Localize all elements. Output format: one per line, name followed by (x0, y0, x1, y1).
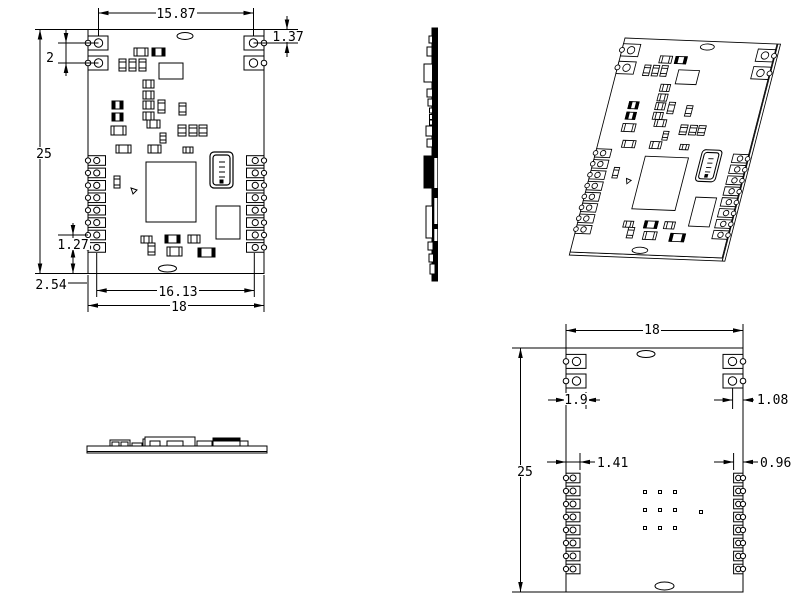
dim-label-board-height: 25 (36, 147, 52, 162)
castellation-pad (734, 525, 746, 535)
dim-label-pad-pitch: 1.27 (57, 238, 88, 253)
mounting-tab (618, 44, 641, 57)
castellation-pad (734, 551, 746, 561)
castellation-pad (573, 225, 593, 234)
dim-label-pad-width-right: 0.96 (760, 456, 791, 471)
castellation-pad (578, 203, 598, 212)
castellation-pad (592, 149, 612, 158)
dim-label-tab-width: 1.9 (564, 393, 587, 408)
dim-label-hole-span: 15.87 (156, 7, 195, 22)
bottom-view (563, 348, 746, 592)
dim-label-bottom-board-width: 18 (644, 323, 660, 338)
mounting-tab (723, 374, 746, 388)
mounting-tab (613, 61, 636, 74)
castellation-pad (734, 473, 746, 483)
castellation-pad (85, 193, 105, 203)
castellation-pad (247, 193, 267, 203)
side-view (424, 28, 438, 281)
castellation-pad (563, 564, 580, 574)
dim-label-pad-width-left: 1.41 (597, 456, 628, 471)
castellation-pad (563, 473, 580, 483)
castellation-pad (734, 512, 746, 522)
castellation-pad (563, 551, 580, 561)
castellation-pad (247, 205, 267, 215)
cad-drawing-page: 15.87 1.37 2 25 1.27 2.54 16.13 18 18 1.… (0, 0, 803, 603)
castellation-pad (247, 218, 267, 228)
castellation-pad (734, 564, 746, 574)
castellation-pad (85, 156, 105, 166)
castellation-pad (247, 168, 267, 178)
castellation-pad (247, 181, 267, 191)
castellation-pad (85, 218, 105, 228)
castellation-pad (563, 499, 580, 509)
dim-label-bottom-board-height: 25 (517, 465, 533, 480)
castellation-pad (247, 156, 267, 166)
dim-label-hole-top-offset: 1.37 (272, 30, 303, 45)
castellation-pad (734, 538, 746, 548)
profile-view (87, 437, 267, 453)
castellation-pad (247, 230, 267, 240)
castellation-pad (85, 181, 105, 191)
dim-label-pad-bottom-offset: 2.54 (35, 278, 66, 293)
dim-label-board-width: 18 (171, 300, 187, 315)
castellation-pad (563, 486, 580, 496)
castellation-pad (575, 214, 595, 223)
castellation-pad (589, 159, 609, 168)
mounting-tab (244, 56, 267, 70)
mounting-tab (723, 354, 746, 368)
castellation-pad (563, 512, 580, 522)
castellation-pad (85, 205, 105, 215)
isometric-view (567, 38, 781, 261)
castellation-pad (247, 243, 267, 253)
dim-label-hole-pitch: 2 (46, 51, 54, 66)
castellation-pad (563, 525, 580, 535)
castellation-pad (587, 170, 607, 179)
castellation-pad (584, 181, 604, 190)
castellation-pad (734, 499, 746, 509)
drawing-canvas: 15.87 1.37 2 25 1.27 2.54 16.13 18 18 1.… (0, 0, 803, 603)
mounting-tab (563, 354, 586, 368)
top-view (85, 30, 267, 274)
castellation-pad (734, 486, 746, 496)
mounting-tab (563, 374, 586, 388)
dim-label-pad-span: 16.13 (158, 285, 197, 300)
castellation-pad (85, 168, 105, 178)
dim-label-hole-edge-offset: 1.08 (757, 393, 788, 408)
castellation-pad (581, 192, 601, 201)
castellation-pad (563, 538, 580, 548)
